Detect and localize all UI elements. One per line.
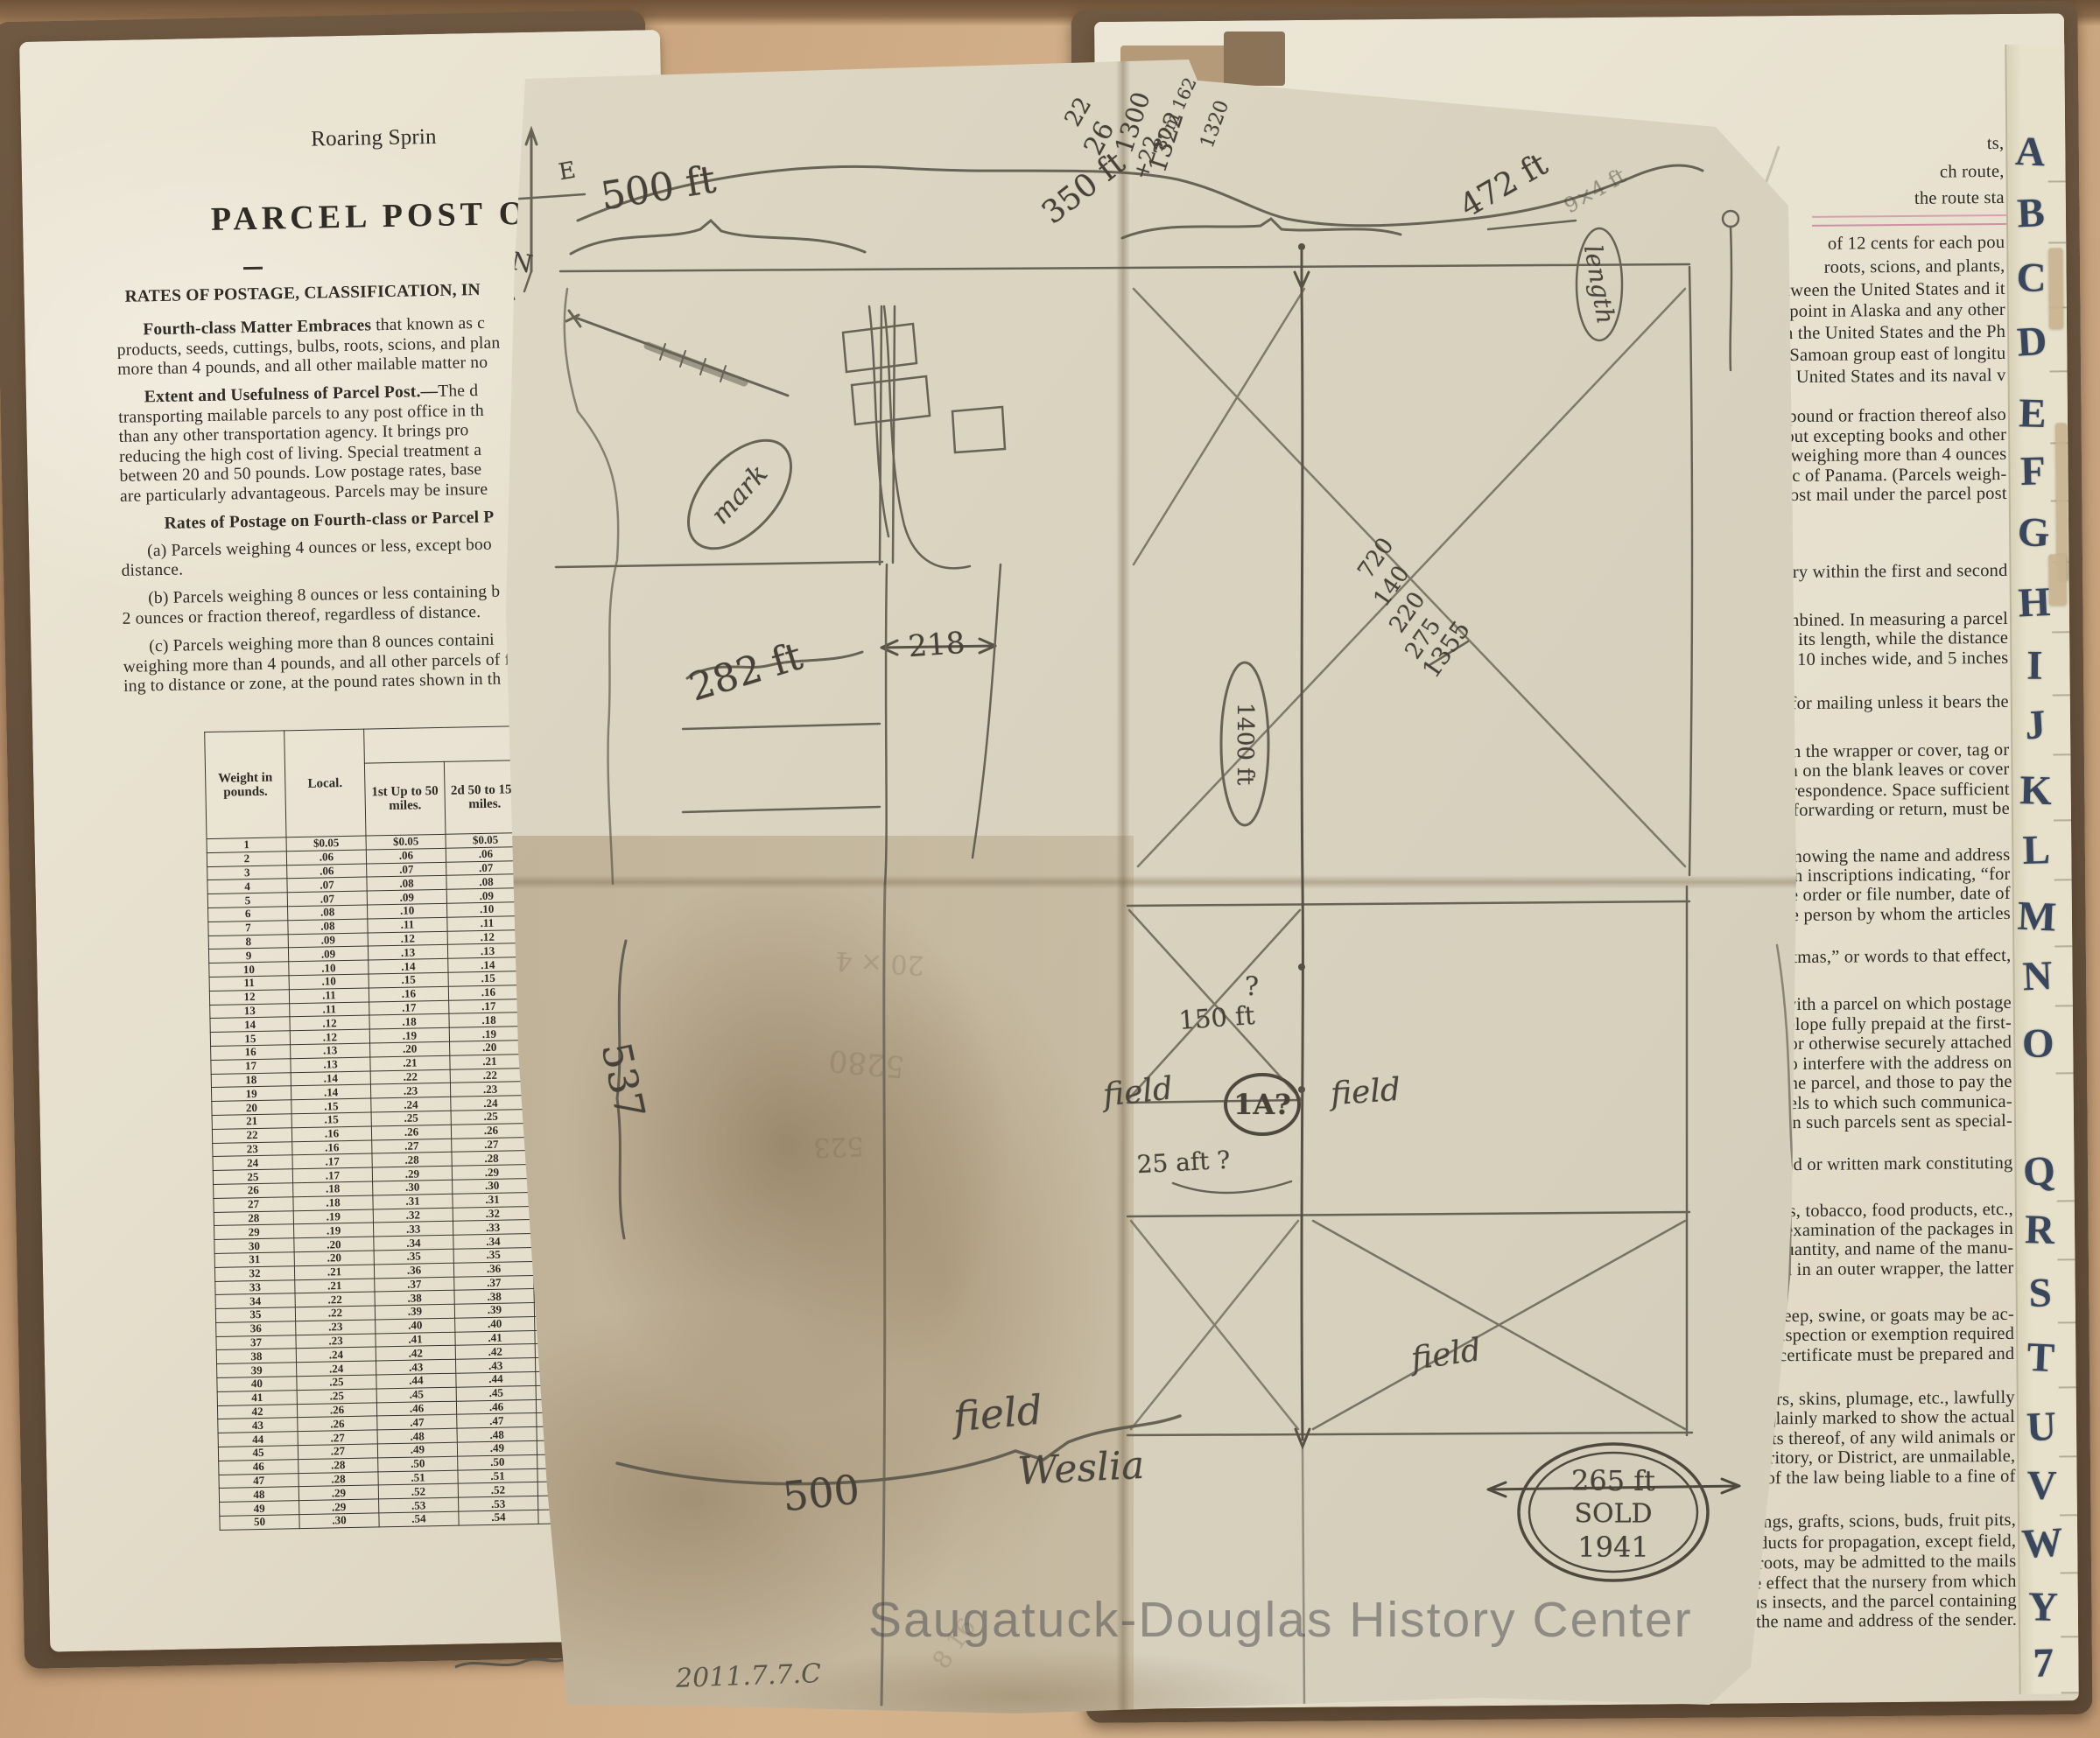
table-cell: .07 bbox=[287, 877, 367, 893]
table-cell: .46 bbox=[456, 1399, 536, 1415]
table-cell: .21 bbox=[370, 1055, 450, 1071]
table-cell: .23 bbox=[296, 1320, 376, 1335]
table-cell: .27 bbox=[298, 1444, 377, 1460]
print-line: distance. bbox=[121, 561, 183, 581]
table-cell: .18 bbox=[449, 1013, 529, 1028]
table-cell: 38 bbox=[216, 1349, 296, 1364]
index-tab-C[interactable]: C bbox=[2016, 255, 2046, 302]
page-header-roaring-spring: Roaring Sprin bbox=[311, 125, 437, 152]
table-cell: .06 bbox=[286, 850, 366, 865]
table-cell: .08 bbox=[288, 905, 368, 921]
table-cell: .17 bbox=[292, 1153, 372, 1169]
handwritten-label: 500 bbox=[781, 1466, 862, 1521]
print-line-fragment: nd the name and address of the sender. bbox=[1733, 1610, 2017, 1633]
tape-fragment bbox=[2048, 554, 2067, 605]
table-cell: .38 bbox=[454, 1289, 534, 1305]
table-cell: .42 bbox=[376, 1346, 455, 1362]
table-cell: .43 bbox=[376, 1359, 456, 1375]
table-cell: .18 bbox=[369, 1014, 449, 1030]
table-cell: 22 bbox=[212, 1127, 291, 1143]
table-cell: .14 bbox=[291, 1071, 370, 1087]
table-cell: .24 bbox=[297, 1361, 376, 1377]
table-cell: 16 bbox=[211, 1045, 291, 1061]
table-cell: .09 bbox=[288, 946, 368, 962]
table-cell: 19 bbox=[211, 1086, 291, 1102]
page-title-parcel-post: PARCEL POST O bbox=[211, 194, 530, 239]
table-cell: .27 bbox=[452, 1137, 531, 1153]
table-cell: .08 bbox=[367, 876, 446, 892]
handwritten-label: ? bbox=[1245, 972, 1259, 1003]
index-tab-M[interactable]: M bbox=[2017, 893, 2058, 942]
table-cell: .29 bbox=[298, 1485, 378, 1501]
table-cell: .40 bbox=[455, 1316, 535, 1332]
col-header-zone1: 1st Up to 50 miles. bbox=[364, 761, 446, 836]
table-cell: 8 bbox=[208, 934, 288, 950]
table-cell: .27 bbox=[298, 1430, 377, 1446]
table-cell: .17 bbox=[369, 1000, 449, 1016]
tab-cut-line bbox=[2061, 1572, 2079, 1573]
table-cell: 39 bbox=[217, 1363, 297, 1378]
handwritten-label: 20 × 4 bbox=[834, 945, 924, 980]
table-cell: .16 bbox=[448, 985, 528, 1000]
table-cell: .41 bbox=[376, 1332, 455, 1348]
table-cell: .25 bbox=[451, 1109, 530, 1125]
table-cell: .25 bbox=[371, 1111, 451, 1126]
table-cell: .06 bbox=[366, 848, 446, 864]
table-cell: .23 bbox=[296, 1334, 376, 1349]
tape-fragment bbox=[2048, 248, 2063, 328]
table-cell: 3 bbox=[207, 865, 287, 880]
table-cell: .36 bbox=[453, 1261, 533, 1277]
table-cell: .13 bbox=[368, 945, 447, 961]
table-cell: 34 bbox=[215, 1293, 295, 1309]
tab-cut-line bbox=[2056, 1072, 2075, 1074]
table-cell: .50 bbox=[378, 1456, 458, 1472]
handwritten-label: field bbox=[1330, 1072, 1402, 1112]
table-cell: .34 bbox=[374, 1235, 453, 1251]
print-line-fragment: of 12 cents for each pou bbox=[1828, 233, 2005, 255]
table-cell: .33 bbox=[453, 1220, 532, 1236]
table-cell: .13 bbox=[291, 1057, 370, 1073]
table-cell: 46 bbox=[219, 1460, 298, 1475]
print-line-fragment: the route sta bbox=[1914, 188, 2005, 209]
table-cell: .16 bbox=[369, 986, 448, 1002]
table-cell: 7 bbox=[208, 921, 288, 936]
handwritten-label: 265 ft bbox=[1571, 1464, 1655, 1497]
table-cell: .22 bbox=[450, 1068, 530, 1083]
table-cell: .11 bbox=[290, 1002, 369, 1018]
table-cell: 48 bbox=[219, 1487, 298, 1503]
table-cell: .10 bbox=[289, 974, 369, 990]
table-cell: 47 bbox=[219, 1473, 298, 1489]
table-cell: .44 bbox=[376, 1373, 456, 1389]
index-tab-I[interactable]: I bbox=[2026, 642, 2043, 690]
table-cell: 12 bbox=[209, 990, 289, 1006]
table-cell: .18 bbox=[293, 1181, 373, 1197]
table-cell: .19 bbox=[293, 1209, 373, 1225]
table-cell: 35 bbox=[215, 1307, 295, 1323]
table-cell: .12 bbox=[368, 931, 447, 947]
print-line-fragment: point in Alaska and any other bbox=[1789, 300, 2005, 322]
table-cell: .53 bbox=[459, 1496, 538, 1512]
tab-cut-line bbox=[2053, 694, 2072, 696]
handwritten-label: 1A? bbox=[1233, 1088, 1291, 1121]
table-cell: .24 bbox=[451, 1096, 530, 1111]
table-cell: .29 bbox=[452, 1165, 531, 1181]
table-cell: .37 bbox=[454, 1275, 534, 1291]
table-cell: .43 bbox=[455, 1358, 535, 1374]
table-cell: .14 bbox=[369, 958, 448, 974]
index-tab-S[interactable]: S bbox=[2028, 1269, 2053, 1317]
table-cell: .19 bbox=[449, 1027, 529, 1042]
paper-scrap bbox=[1224, 32, 1285, 86]
handwritten-label: SOLD bbox=[1574, 1499, 1652, 1530]
table-cell: .30 bbox=[453, 1178, 532, 1194]
tab-cut-line bbox=[2054, 819, 2073, 821]
table-cell: .20 bbox=[370, 1041, 450, 1057]
table-cell: .20 bbox=[294, 1237, 374, 1252]
table-cell: .25 bbox=[297, 1389, 376, 1405]
table-cell: .42 bbox=[455, 1344, 535, 1360]
table-cell: .17 bbox=[292, 1167, 372, 1183]
print-line-fragment: een the United States and the Ph bbox=[1767, 322, 2005, 344]
tab-cut-line bbox=[2055, 1005, 2075, 1006]
table-cell: .16 bbox=[292, 1140, 372, 1156]
title-divider bbox=[243, 267, 263, 270]
hand-drawn-survey-map-sheet: SWENN500 ft350 ft472 ft9×4 ft22261300+22… bbox=[486, 48, 1799, 1720]
table-cell: .20 bbox=[450, 1040, 530, 1055]
table-cell: .22 bbox=[370, 1069, 450, 1085]
handwritten-label: field bbox=[952, 1386, 1044, 1441]
handwritten-label: 1400 ft bbox=[1232, 703, 1258, 786]
table-cell: .09 bbox=[367, 889, 446, 905]
table-cell: .41 bbox=[455, 1330, 535, 1346]
table-cell: .32 bbox=[453, 1206, 532, 1222]
tab-cut-line bbox=[2057, 1200, 2076, 1202]
index-tab-H[interactable]: H bbox=[2017, 578, 2051, 627]
table-cell: 42 bbox=[217, 1404, 297, 1419]
table-cell: .40 bbox=[376, 1318, 455, 1334]
table-cell: .34 bbox=[453, 1234, 533, 1250]
table-cell: .33 bbox=[373, 1222, 453, 1237]
index-tab-E[interactable]: E bbox=[2019, 389, 2047, 438]
table-cell: .19 bbox=[293, 1223, 373, 1238]
table-cell: 4 bbox=[207, 879, 287, 894]
tab-cut-line bbox=[2060, 1514, 2079, 1516]
index-tab-R[interactable]: R bbox=[2024, 1206, 2054, 1254]
pink-double-rule bbox=[1812, 214, 2018, 227]
table-cell: .21 bbox=[295, 1278, 375, 1293]
table-cell: .50 bbox=[458, 1454, 537, 1470]
accession-number: 2011.7.7.C bbox=[675, 1658, 821, 1694]
table-cell: 5 bbox=[207, 893, 287, 908]
handwritten-label: 150 ft bbox=[1177, 1000, 1255, 1035]
table-cell: .15 bbox=[291, 1098, 371, 1114]
table-cell: 23 bbox=[213, 1141, 292, 1157]
tab-cut-line bbox=[2059, 1386, 2078, 1388]
table-cell: 32 bbox=[214, 1265, 294, 1281]
table-cell: .51 bbox=[378, 1470, 458, 1486]
table-cell: .45 bbox=[456, 1385, 536, 1401]
handwritten-label: Weslia bbox=[1016, 1443, 1145, 1495]
table-cell: .16 bbox=[291, 1126, 371, 1142]
table-cell: .39 bbox=[375, 1304, 454, 1320]
table-cell: .32 bbox=[373, 1208, 453, 1223]
table-cell: .47 bbox=[457, 1413, 537, 1429]
tab-cut-line bbox=[2050, 370, 2069, 372]
table-cell: .35 bbox=[374, 1249, 453, 1265]
index-tab-W[interactable]: W bbox=[2020, 1518, 2064, 1568]
tab-cut-line bbox=[2053, 753, 2072, 755]
table-cell: $0.05 bbox=[366, 834, 446, 850]
table-cell: 50 bbox=[220, 1515, 299, 1531]
table-cell: .07 bbox=[367, 862, 446, 878]
handwritten-label: 25 aft ? bbox=[1136, 1146, 1231, 1180]
table-cell: 25 bbox=[213, 1169, 292, 1185]
table-cell: 36 bbox=[216, 1321, 296, 1337]
table-cell: .26 bbox=[451, 1123, 530, 1139]
handwritten-label: 218 bbox=[907, 626, 966, 664]
table-cell: .48 bbox=[377, 1428, 457, 1444]
table-cell: 21 bbox=[212, 1114, 291, 1130]
table-cell: .24 bbox=[296, 1347, 376, 1363]
table-cell: .28 bbox=[372, 1153, 452, 1168]
table-cell: .39 bbox=[454, 1303, 534, 1319]
table-cell: .36 bbox=[374, 1263, 453, 1279]
table-cell: .24 bbox=[371, 1097, 451, 1112]
tab-cut-line bbox=[2048, 242, 2068, 243]
table-cell: 26 bbox=[214, 1183, 293, 1199]
table-cell: 18 bbox=[211, 1072, 291, 1088]
index-tab-G[interactable]: G bbox=[2017, 508, 2051, 557]
table-cell: .18 bbox=[293, 1195, 373, 1211]
table-cell: 20 bbox=[212, 1100, 291, 1116]
table-cell: 29 bbox=[214, 1224, 294, 1240]
table-cell: .31 bbox=[453, 1192, 532, 1208]
table-cell: .23 bbox=[370, 1083, 450, 1099]
table-cell: 6 bbox=[208, 907, 288, 922]
print-line-fragment: ch route, bbox=[1940, 162, 2005, 183]
index-tab-F[interactable]: F bbox=[2019, 447, 2046, 495]
handwritten-label: 1941 bbox=[1577, 1531, 1648, 1564]
tab-cut-line bbox=[2058, 1321, 2077, 1323]
print-line: Rates of Postage on Fourth-class or Parc… bbox=[164, 508, 494, 534]
tab-cut-line bbox=[2054, 945, 2074, 947]
table-cell: .21 bbox=[450, 1054, 530, 1069]
print-line-fragment: roots, scions, and plants, bbox=[1824, 256, 2005, 278]
table-cell: .11 bbox=[368, 917, 447, 933]
col-header-weight: Weight in pounds. bbox=[205, 731, 286, 839]
table-cell: .09 bbox=[288, 933, 368, 949]
table-cell: .15 bbox=[291, 1112, 371, 1128]
table-cell: 41 bbox=[217, 1391, 297, 1406]
table-cell: .28 bbox=[298, 1458, 378, 1474]
table-cell: 1 bbox=[207, 837, 286, 853]
tab-cut-line bbox=[2052, 631, 2071, 633]
index-tab-O[interactable]: O bbox=[2022, 1020, 2054, 1067]
table-cell: .49 bbox=[377, 1442, 457, 1458]
table-cell: .44 bbox=[456, 1372, 536, 1388]
table-cell: 14 bbox=[210, 1017, 290, 1033]
col-header-local: Local. bbox=[284, 729, 366, 837]
table-cell: 44 bbox=[218, 1432, 298, 1447]
index-tab-A[interactable]: A bbox=[2014, 128, 2046, 176]
table-cell: .47 bbox=[377, 1415, 457, 1431]
table-cell: .26 bbox=[298, 1416, 377, 1432]
print-line: RATES OF POSTAGE, CLASSIFICATION, IN bbox=[124, 281, 481, 307]
table-cell: .30 bbox=[299, 1513, 379, 1529]
table-cell: 10 bbox=[209, 962, 289, 978]
index-tab-N[interactable]: N bbox=[2021, 952, 2053, 1000]
tab-cut-line bbox=[2057, 1258, 2076, 1260]
index-tab-J[interactable]: J bbox=[2024, 701, 2047, 749]
table-cell: .46 bbox=[376, 1401, 456, 1417]
table-cell: .53 bbox=[379, 1497, 459, 1513]
table-cell: 37 bbox=[216, 1335, 296, 1350]
table-cell: .35 bbox=[453, 1247, 533, 1263]
table-cell: 30 bbox=[214, 1238, 294, 1254]
tab-cut-line bbox=[2061, 1636, 2079, 1637]
table-cell: 33 bbox=[215, 1279, 295, 1295]
table-cell: .54 bbox=[379, 1511, 459, 1527]
index-tab-U[interactable]: U bbox=[2026, 1403, 2057, 1451]
table-cell: .27 bbox=[372, 1139, 452, 1154]
table-cell: 9 bbox=[208, 948, 288, 964]
table-cell: 13 bbox=[210, 1003, 290, 1019]
table-cell: $0.05 bbox=[286, 836, 366, 851]
index-tab-Y[interactable]: Y bbox=[2027, 1583, 2058, 1631]
table-cell: .08 bbox=[288, 919, 368, 935]
table-cell: .21 bbox=[294, 1265, 374, 1280]
table-cell: .13 bbox=[291, 1043, 370, 1059]
table-cell: .26 bbox=[297, 1403, 376, 1419]
table-cell: .20 bbox=[294, 1251, 374, 1266]
print-line: (a) Parcels weighing 4 ounces or less, e… bbox=[147, 536, 492, 562]
table-cell: .12 bbox=[290, 1029, 369, 1045]
index-tab-D[interactable]: D bbox=[2016, 318, 2048, 367]
table-cell: 17 bbox=[211, 1059, 291, 1075]
table-cell: .14 bbox=[291, 1084, 370, 1100]
print-line-fragment: ts, bbox=[1987, 134, 2005, 154]
index-tab-V[interactable]: V bbox=[2026, 1461, 2056, 1509]
handwritten-label: 5280 bbox=[827, 1042, 906, 1083]
table-cell: .29 bbox=[372, 1166, 452, 1181]
table-cell: .28 bbox=[452, 1151, 531, 1167]
table-cell: 2 bbox=[207, 851, 286, 867]
table-cell: .52 bbox=[378, 1484, 458, 1500]
handwritten-label: 523 bbox=[813, 1131, 864, 1163]
table-cell: .45 bbox=[376, 1387, 456, 1403]
index-tab-L[interactable]: L bbox=[2022, 826, 2051, 874]
tab-cut-line bbox=[2048, 180, 2068, 182]
photo-of-open-parcel-post-booklet-with-survey-map: Roaring Sprin PARCEL POST O RATES OF POS… bbox=[0, 0, 2100, 1738]
table-cell: 27 bbox=[214, 1196, 293, 1212]
table-cell: .37 bbox=[375, 1277, 454, 1293]
table-cell: .06 bbox=[287, 864, 367, 880]
table-cell: 31 bbox=[214, 1252, 294, 1268]
table-cell: .48 bbox=[457, 1427, 537, 1443]
table-cell: .25 bbox=[297, 1375, 376, 1391]
table-cell: 28 bbox=[214, 1210, 293, 1226]
table-cell: 15 bbox=[210, 1031, 290, 1047]
table-cell: .54 bbox=[459, 1510, 538, 1525]
table-cell: .51 bbox=[458, 1468, 537, 1484]
table-cell: .31 bbox=[373, 1194, 453, 1209]
table-cell: .22 bbox=[295, 1306, 375, 1321]
table-cell: .29 bbox=[299, 1499, 379, 1515]
index-tab-K[interactable]: K bbox=[2019, 767, 2053, 815]
table-cell: .12 bbox=[290, 1015, 369, 1031]
index-tab-7[interactable]: 7 bbox=[2033, 1639, 2054, 1687]
table-cell: .30 bbox=[373, 1180, 453, 1195]
watermark-text: Saugatuck-Douglas History Center bbox=[868, 1591, 1693, 1649]
tab-cut-line bbox=[2054, 879, 2074, 880]
table-cell: .10 bbox=[368, 903, 447, 919]
table-cell: 49 bbox=[220, 1501, 299, 1517]
table-cell: .52 bbox=[458, 1482, 537, 1498]
table-cell: 24 bbox=[213, 1155, 292, 1171]
table-cell: .11 bbox=[289, 988, 369, 1004]
table-cell: .49 bbox=[457, 1441, 537, 1457]
table-cell: .10 bbox=[289, 960, 369, 976]
table-cell: 40 bbox=[217, 1377, 297, 1392]
table-cell: .15 bbox=[369, 972, 448, 988]
table-cell: .17 bbox=[449, 999, 529, 1014]
table-cell: .22 bbox=[295, 1292, 375, 1307]
index-tab-Q[interactable]: Q bbox=[2022, 1147, 2057, 1196]
table-cell: 45 bbox=[218, 1446, 298, 1461]
table-cell: 11 bbox=[209, 976, 289, 992]
tab-cut-line bbox=[2061, 1692, 2079, 1693]
table-cell: .28 bbox=[298, 1472, 378, 1488]
table-cell: 43 bbox=[218, 1418, 298, 1433]
table-cell: .23 bbox=[450, 1082, 530, 1097]
tab-cut-line bbox=[2059, 1455, 2078, 1457]
table-cell: .07 bbox=[287, 891, 367, 907]
table-cell: .38 bbox=[375, 1291, 454, 1307]
handwritten-label: field bbox=[1101, 1070, 1175, 1113]
table-cell: .19 bbox=[369, 1027, 449, 1043]
table-cell: .26 bbox=[371, 1125, 451, 1140]
print-line-fragment: tween the United States and it bbox=[1785, 279, 2005, 301]
index-tab-B[interactable]: B bbox=[2016, 189, 2046, 237]
index-tab-T[interactable]: T bbox=[2026, 1334, 2056, 1382]
